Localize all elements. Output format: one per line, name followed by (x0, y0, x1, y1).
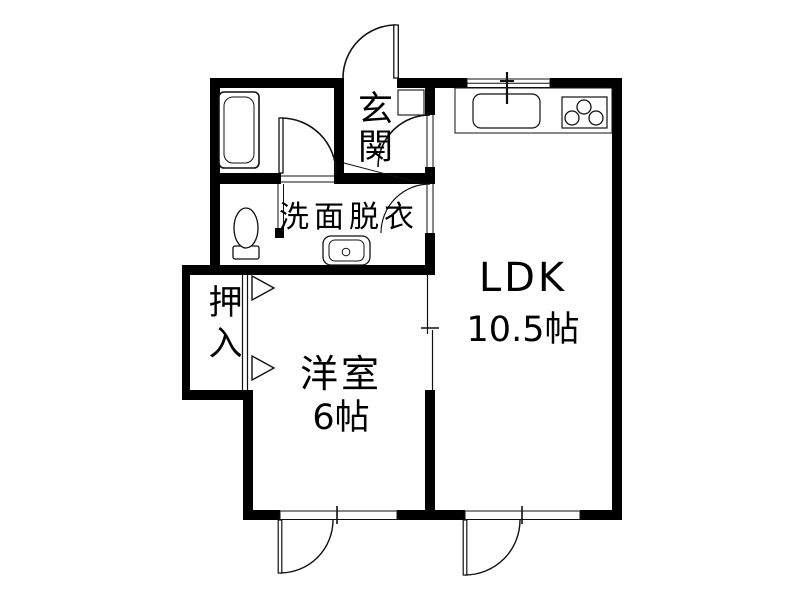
ldk-terrace-swing (463, 520, 520, 575)
wall-water-area-bottom (182, 265, 435, 275)
shoe-cabinet (398, 90, 424, 115)
entrance-door-arc (343, 25, 396, 78)
wall-closet-bottom (182, 390, 253, 400)
bathroom-door-arc (281, 118, 336, 173)
toilet-bowl (234, 208, 258, 248)
entrance-door-leaf (394, 25, 399, 78)
wall-ldk-divider-2 (425, 167, 435, 184)
wall-genkan-bottom (336, 173, 435, 184)
wall-bottom-3 (580, 510, 622, 520)
bathroom-door-leaf (279, 118, 283, 173)
toilet-icon (233, 208, 259, 259)
floor-plan: 玄関 洗面脱衣 LDK 10.5帖 洋室 6帖 押入 (0, 0, 800, 600)
west-room-terrace-window (280, 511, 397, 520)
wall-bath-bottom (210, 173, 281, 184)
west-room-swing-leaf (278, 520, 282, 573)
stove-burner-right (589, 111, 603, 125)
wall-west-room-left (243, 390, 253, 520)
room-area-western-room: 6帖 (258, 389, 424, 440)
west-room-terrace-swing (278, 520, 333, 573)
bathtub-icon (219, 92, 259, 168)
room-label-washroom: 洗面脱衣 (279, 192, 419, 236)
stove-burner-left (565, 111, 579, 125)
washbasin-drain (342, 248, 350, 256)
shoe-cabinet-icon (398, 90, 424, 115)
stove-burner-top (577, 100, 591, 114)
washbasin-icon (323, 236, 370, 265)
ldk-swing-arc (465, 520, 520, 575)
floor-plan-drawing (0, 0, 800, 600)
wall-ldk-divider-1 (425, 78, 435, 115)
room-label-genkan: 玄関 (347, 90, 398, 166)
wall-top-1 (210, 78, 343, 88)
west-room-swing-arc (280, 520, 333, 573)
entrance-door (343, 25, 398, 78)
room-label-ldk: LDK (430, 255, 616, 301)
bathtub-inner (224, 97, 254, 163)
room-label-closet: 押入 (198, 284, 247, 366)
wall-ldk-divider-4 (425, 390, 435, 512)
bathroom-door (279, 118, 336, 182)
room-area-ldk: 10.5帖 (430, 301, 616, 352)
closet-triangle-top (252, 276, 274, 300)
wall-closet-left (182, 265, 190, 400)
wall-top-3 (550, 78, 622, 88)
ldk-swing-leaf (463, 520, 467, 575)
